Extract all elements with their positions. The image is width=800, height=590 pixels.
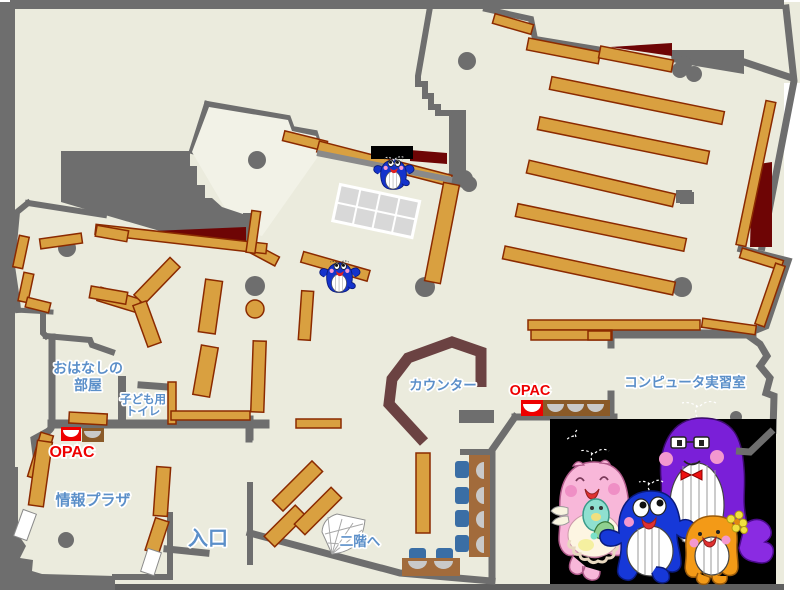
svg-text:トイレ: トイレ xyxy=(126,405,161,418)
svg-text:おはなしの: おはなしの xyxy=(53,360,123,376)
svg-text:二階へ: 二階へ xyxy=(340,533,381,549)
svg-text:子ども用: 子ども用 xyxy=(120,393,166,406)
svg-text:部屋: 部屋 xyxy=(74,377,102,393)
svg-text:カウンター: カウンター xyxy=(409,378,477,393)
svg-text:コンピュータ実習室: コンピュータ実習室 xyxy=(624,374,746,390)
svg-text:OPAC: OPAC xyxy=(510,383,551,399)
svg-text:入口: 入口 xyxy=(188,527,228,550)
svg-text:OPAC: OPAC xyxy=(49,444,94,461)
svg-text:情報プラザ: 情報プラザ xyxy=(55,491,130,509)
